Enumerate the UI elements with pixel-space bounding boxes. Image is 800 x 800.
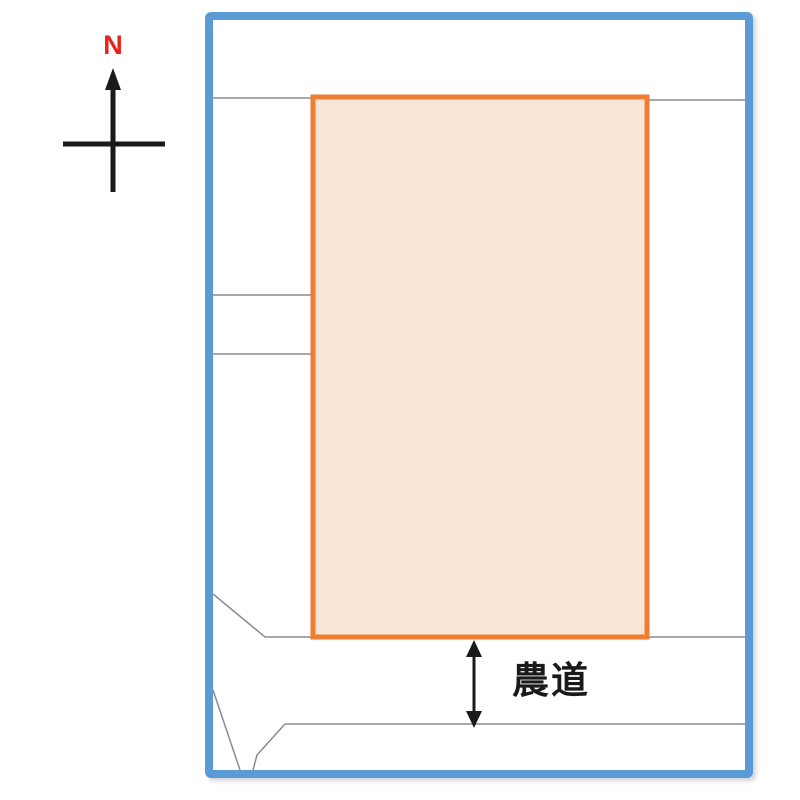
arrow-shaft (473, 654, 476, 714)
compass-arrowhead (105, 68, 121, 90)
compass-cross-icon (55, 32, 175, 200)
land-parcel (313, 97, 647, 637)
road-width-arrow (466, 640, 482, 728)
arrow-head-down (466, 711, 482, 728)
map-frame: 農道 (205, 12, 753, 778)
compass-horizontal-bar (63, 142, 165, 147)
compass: N (55, 32, 175, 200)
arrow-head-up (466, 640, 482, 657)
diagonal-line-lower-left (213, 690, 240, 770)
diagonal-connector-lower-left (253, 724, 285, 770)
plan-drawing (213, 20, 745, 770)
road-label: 農道 (512, 661, 590, 702)
compass-vertical-shaft (111, 88, 116, 192)
boundary-line-bottom-left (213, 594, 313, 637)
site-plan-canvas: N (0, 0, 800, 800)
